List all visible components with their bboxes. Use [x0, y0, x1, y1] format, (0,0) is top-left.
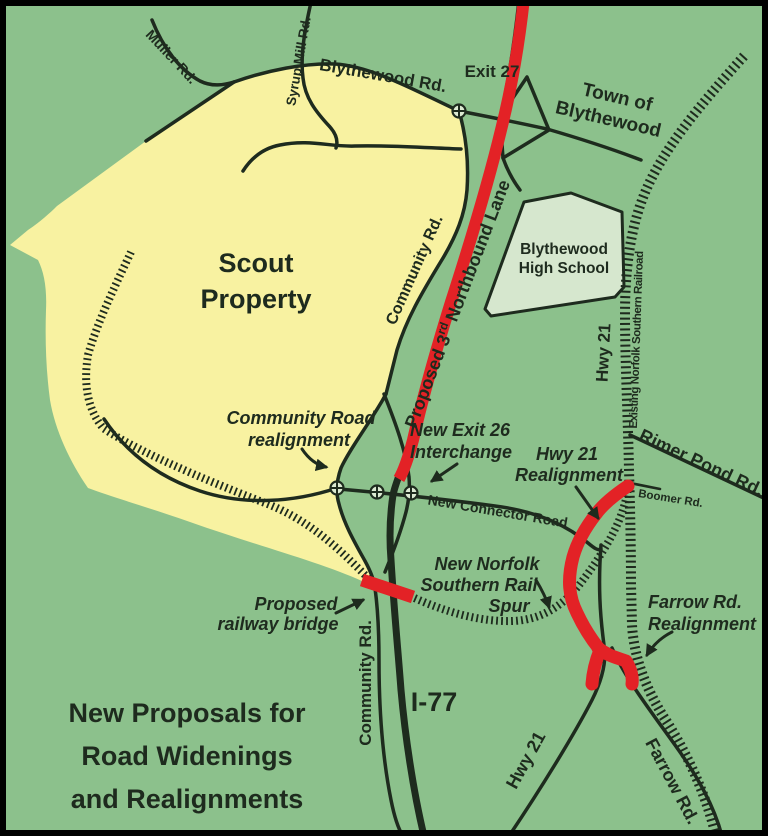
map-canvas: Muller Rd. Syrup Mill Rd. Blythewood Rd.… [0, 0, 768, 836]
svg-text:Farrow Rd.: Farrow Rd. [648, 592, 742, 612]
title-line3: and Realignments [71, 784, 304, 814]
svg-text:Interchange: Interchange [410, 442, 512, 462]
map-title: New Proposals for Road Widenings and Rea… [68, 698, 306, 814]
svg-text:Realignment: Realignment [515, 465, 624, 485]
label-exit-27: Exit 27 [465, 62, 520, 81]
svg-text:Community Road: Community Road [226, 408, 376, 428]
label-school-line2: High School [519, 260, 609, 277]
road-proposals-map: Muller Rd. Syrup Mill Rd. Blythewood Rd.… [0, 0, 768, 836]
svg-text:railway bridge: railway bridge [217, 614, 338, 634]
node-blythewood [453, 105, 466, 118]
svg-text:Proposed: Proposed [254, 594, 338, 614]
label-scout-line1: Scout [218, 248, 293, 278]
node-connector-2 [371, 486, 384, 499]
label-i77: I-77 [411, 687, 458, 717]
node-connector-3 [405, 487, 418, 500]
title-line2: Road Widenings [81, 741, 292, 771]
svg-text:Realignment: Realignment [648, 614, 757, 634]
svg-text:New Norfolk: New Norfolk [434, 554, 540, 574]
label-school-line1: Blythewood [520, 241, 608, 258]
label-community-rd-south: Community Rd. [356, 620, 375, 746]
label-scout-line2: Property [200, 284, 311, 314]
label-hwy21-north: Hwy 21 [592, 323, 614, 383]
title-line1: New Proposals for [68, 698, 306, 728]
node-connector-1 [331, 482, 344, 495]
svg-text:New Exit 26: New Exit 26 [410, 420, 511, 440]
svg-text:Spur: Spur [488, 596, 530, 616]
svg-text:realignment: realignment [248, 430, 351, 450]
svg-text:Southern Rail: Southern Rail [420, 575, 538, 595]
svg-text:Hwy 21: Hwy 21 [536, 444, 598, 464]
